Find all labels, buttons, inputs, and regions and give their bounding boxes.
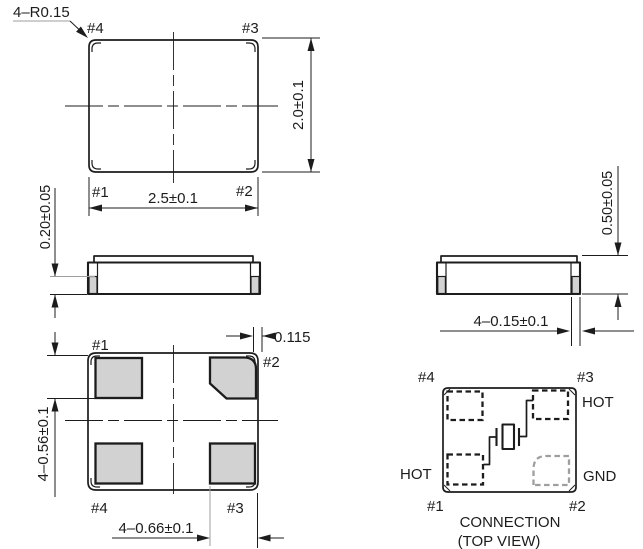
- hot-label-pin1: HOT: [400, 466, 432, 483]
- connection-pin4-label: #4: [418, 369, 435, 386]
- bottom-view-pin1-label: #1: [92, 337, 109, 354]
- side-terminal-right: [572, 277, 580, 294]
- side-view-side: 0.50±0.05 4–0.15±0.1: [437, 166, 634, 346]
- bottom-view-pin3-label: #3: [227, 500, 244, 517]
- connection-diagram: #4 #3 #1 #2 HOT HOT GND CONNECTION (TOP …: [400, 369, 617, 549]
- front-terminal-right: [251, 277, 259, 294]
- dim-pad-height: 4–0.56±0.1: [35, 332, 95, 497]
- connection-pad-2-gnd: [534, 456, 570, 485]
- bottom-view-pin2-label: #2: [263, 354, 280, 371]
- drawing-canvas: #4 #3 #1 #2 4–R0.15 2.5±0.1 2.0±0.1: [0, 0, 643, 549]
- pad-2: [210, 358, 256, 399]
- top-view-pin3-label: #3: [242, 20, 259, 37]
- connection-caption-line1: CONNECTION: [460, 514, 561, 531]
- top-view-pin1-label: #1: [92, 184, 109, 201]
- package-width-value: 2.5±0.1: [148, 190, 198, 207]
- dim-package-height: 2.0±0.1: [262, 38, 320, 172]
- connection-corner-ticks: [444, 389, 575, 491]
- package-dimension-drawing: #4 #3 #1 #2 4–R0.15 2.5±0.1 2.0±0.1: [0, 0, 643, 549]
- pad-width-value: 4–0.66±0.1: [119, 520, 194, 537]
- connection-pin3-label: #3: [577, 369, 594, 386]
- package-thickness-value: 0.50±0.05: [600, 171, 616, 235]
- top-view-centerlines: [65, 32, 278, 183]
- dim-pad-width: 4–0.66±0.1: [112, 486, 284, 548]
- corner-radius-label: 4–R0.15: [13, 4, 70, 21]
- top-view: #4 #3 #1 #2 4–R0.15 2.5±0.1 2.0±0.1: [13, 4, 320, 216]
- hot-label-pin3: HOT: [582, 394, 614, 411]
- front-body: [88, 263, 260, 295]
- dim-package-thickness: 0.50±0.05: [582, 166, 628, 320]
- crystal-lead-pin3: [519, 401, 533, 437]
- bottom-view-pin4-label: #4: [91, 500, 108, 517]
- connection-pin2-label: #2: [569, 498, 586, 515]
- connection-pad-3: [533, 391, 568, 420]
- package-height-value: 2.0±0.1: [290, 80, 307, 130]
- corner-radius-callout: 4–R0.15: [13, 4, 88, 38]
- corner-offset-value: 0.115: [274, 329, 310, 346]
- bottom-view: #1 #2 #4 #3 0.115 4–0.56±0.1: [35, 327, 310, 548]
- pad-4: [96, 444, 143, 484]
- electrode-width-value: 4–0.15±0.1: [474, 313, 549, 330]
- side-body: [437, 263, 580, 295]
- top-view-pin4-label: #4: [87, 20, 104, 37]
- connection-pin1-label: #1: [427, 498, 444, 515]
- top-view-pin2-label: #2: [236, 183, 253, 200]
- connection-pad-4: [448, 392, 483, 421]
- dim-electrode-height: 0.20±0.05: [38, 185, 95, 318]
- pad-height-value: 4–0.56±0.1: [35, 407, 52, 482]
- connection-pad-1: [448, 455, 484, 485]
- gnd-label-pin2: GND: [583, 468, 617, 485]
- dim-corner-offset: 0.115: [226, 327, 310, 352]
- electrode-height-value: 0.20±0.05: [38, 185, 54, 249]
- connection-outline: [443, 388, 576, 492]
- front-terminal-left: [89, 277, 97, 294]
- crystal-symbol: [484, 401, 534, 465]
- crystal-lead-pin1: [484, 437, 497, 465]
- dim-electrode-width: 4–0.15±0.1: [440, 297, 634, 346]
- side-terminal-left: [438, 277, 446, 294]
- pad-3: [210, 444, 255, 484]
- pad-1: [96, 358, 143, 398]
- connection-caption-line2: (TOP VIEW): [458, 533, 541, 549]
